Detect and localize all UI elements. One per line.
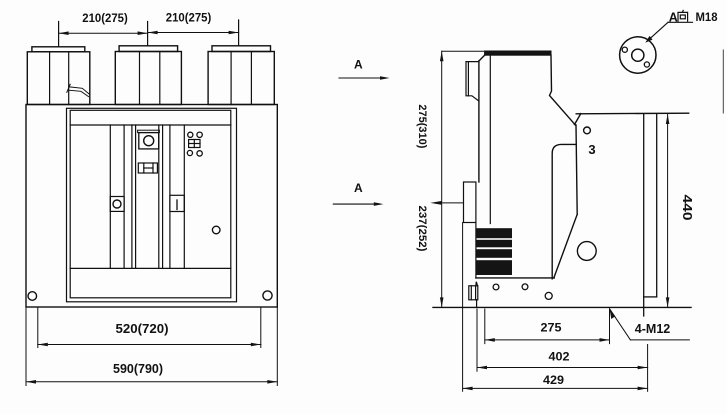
svg-text:237(252): 237(252): [416, 206, 428, 252]
svg-text:429: 429: [543, 373, 564, 387]
svg-text:A: A: [669, 10, 678, 24]
svg-text:A: A: [354, 58, 363, 72]
svg-text:M18: M18: [696, 10, 718, 24]
svg-text:440: 440: [680, 195, 695, 221]
svg-text:3: 3: [588, 142, 595, 157]
svg-text:210(275): 210(275): [166, 12, 212, 24]
svg-text:590(790): 590(790): [113, 362, 163, 376]
svg-text:520(720): 520(720): [116, 321, 169, 336]
svg-text:402: 402: [549, 350, 570, 364]
svg-text:275: 275: [541, 321, 562, 335]
svg-text:210(275): 210(275): [82, 13, 128, 25]
svg-text:4-M12: 4-M12: [635, 322, 671, 336]
svg-text:275(310): 275(310): [416, 104, 428, 148]
svg-text:A: A: [354, 181, 363, 195]
